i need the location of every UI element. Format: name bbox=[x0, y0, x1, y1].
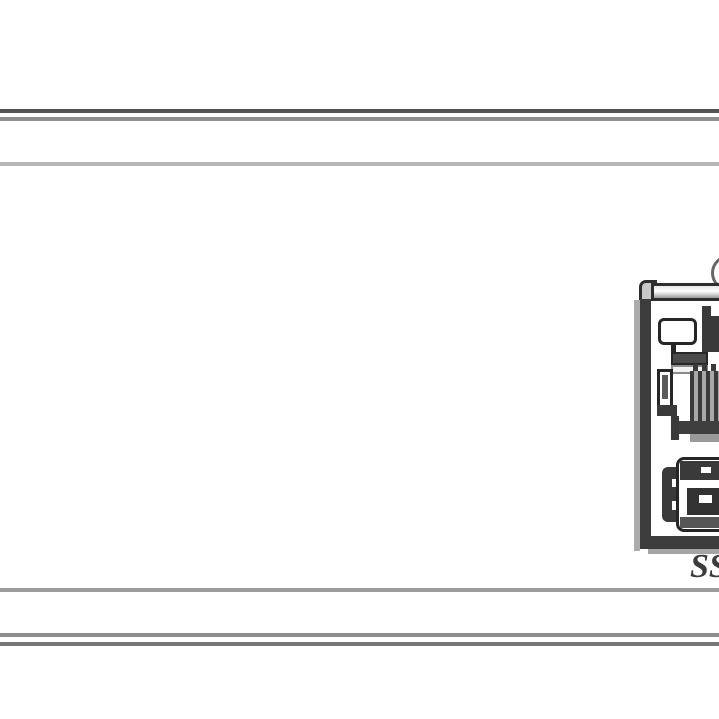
callout-label: SS bbox=[690, 550, 719, 584]
upper-connector-lower-stem bbox=[671, 416, 679, 440]
upper-connector-base-shadow bbox=[690, 434, 719, 442]
callout-top-rod bbox=[651, 283, 719, 301]
hardware-panel-diagram: SS bbox=[0, 0, 719, 719]
upper-connector-slot-pin bbox=[662, 375, 668, 399]
upper-connector-pin-nub bbox=[702, 364, 707, 371]
callout-frame-left bbox=[640, 299, 651, 549]
upper-connector-base-bar bbox=[679, 421, 719, 434]
lower-connector-top-contact bbox=[701, 467, 711, 473]
chassis-top-inner-edge bbox=[0, 117, 719, 121]
upper-connector-step-block bbox=[702, 306, 711, 352]
lower-connector-top-bar bbox=[680, 461, 719, 480]
lower-connector-bottom-bar bbox=[680, 517, 719, 528]
lower-connector-mid-contact bbox=[699, 495, 712, 503]
upper-connector-step-block bbox=[711, 316, 719, 352]
upper-connector-left-step bbox=[657, 405, 677, 416]
upper-connector-pin-nub bbox=[711, 364, 716, 371]
panel-top-edge bbox=[0, 162, 719, 166]
chassis-bottom-outer-edge bbox=[0, 642, 719, 646]
chassis-top-outer-edge bbox=[0, 109, 719, 113]
upper-connector-port-outline bbox=[658, 318, 697, 345]
upper-connector-pin-nub bbox=[693, 364, 698, 371]
panel-bottom-edge bbox=[0, 588, 719, 592]
upper-connector-pin-block bbox=[690, 371, 719, 421]
chassis-bottom-inner-edge bbox=[0, 633, 719, 637]
